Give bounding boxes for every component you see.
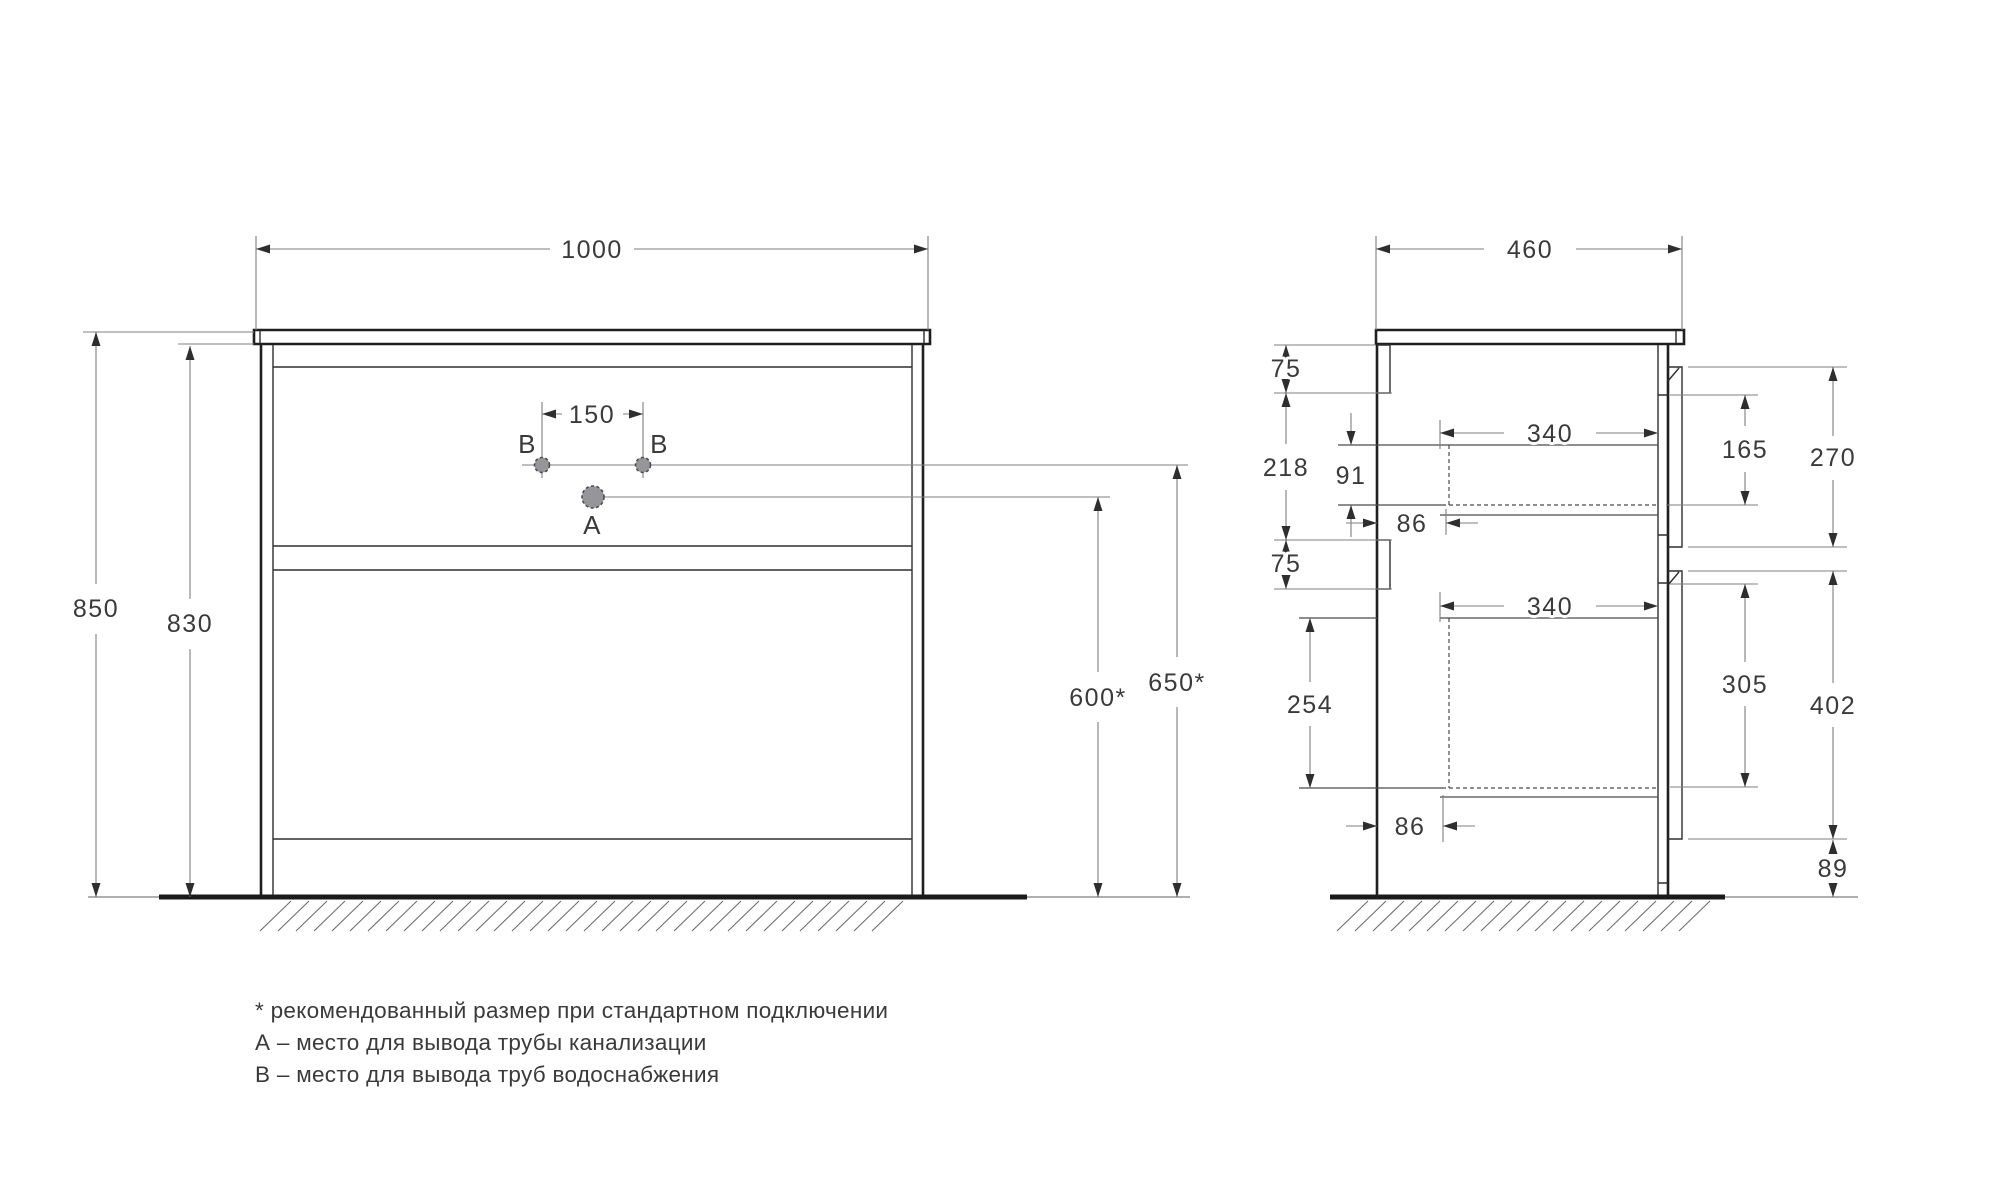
arrowhead-icon <box>186 346 195 360</box>
hatch-line <box>710 901 741 931</box>
hatch-line <box>458 901 489 931</box>
arrowhead-icon <box>92 332 101 346</box>
dim-side-depth: 460 <box>1507 236 1553 264</box>
arrowhead-icon <box>256 245 270 254</box>
hatch-line <box>494 901 525 931</box>
dim-bottom-drawer-inner: 254 <box>1287 691 1333 719</box>
hatch-line <box>1337 901 1368 931</box>
label-point-b-left: B <box>518 429 536 459</box>
arrowhead-icon <box>1094 883 1103 897</box>
hatch-line <box>782 901 813 931</box>
arrowhead-icon <box>1363 519 1377 528</box>
hatch-line <box>1445 901 1476 931</box>
hatch-line <box>1589 901 1620 931</box>
hatch-line <box>1607 901 1638 931</box>
dim-overall-height: 850 <box>73 595 119 623</box>
arrowhead-icon <box>914 245 928 254</box>
hatch-line <box>1409 901 1440 931</box>
arrowhead-icon <box>1829 367 1838 381</box>
arrowhead-icon <box>1829 533 1838 547</box>
hatch-line <box>836 901 867 931</box>
hatch-line <box>1355 901 1386 931</box>
arrowhead-icon <box>1347 431 1356 445</box>
hatch-line <box>1643 901 1674 931</box>
arrowhead-icon <box>629 410 643 419</box>
ground-hatch-side <box>1337 901 1710 931</box>
side-view-drawers <box>1299 445 1658 797</box>
ground <box>88 897 1858 931</box>
hatch-line <box>296 901 327 931</box>
hatch-line <box>602 901 633 931</box>
hatch-line <box>530 901 561 931</box>
dim-bottom-back-offset: 86 <box>1395 813 1426 841</box>
arrowhead-icon <box>1741 773 1750 787</box>
hatch-line <box>368 901 399 931</box>
dim-bottom-front-span: 305 <box>1722 671 1768 699</box>
hatch-line <box>872 901 903 931</box>
dim-bottom-drawer-depth: 340 <box>1527 593 1573 621</box>
hatch-line <box>800 901 831 931</box>
dim-front-width: 1000 <box>561 236 623 264</box>
arrowhead-icon <box>1443 822 1457 831</box>
hatch-line <box>278 901 309 931</box>
drain-point <box>582 486 604 508</box>
arrowhead-icon <box>1376 245 1390 254</box>
hatch-line <box>746 901 777 931</box>
hatch-line <box>1571 901 1602 931</box>
arrowhead-icon <box>1440 429 1454 438</box>
label-point-b-right: B <box>650 429 668 459</box>
hatch-line <box>1499 901 1530 931</box>
dim-upper-span: 218 <box>1263 454 1309 482</box>
hatch-line <box>1481 901 1512 931</box>
arrowhead-icon <box>1446 519 1460 528</box>
arrowhead-icon <box>1363 822 1377 831</box>
hatch-line <box>1463 901 1494 931</box>
hatch-line <box>1553 901 1584 931</box>
legend-point-b: В – место для вывода труб водоснабжения <box>255 1062 719 1087</box>
dim-top-bracket: 75 <box>1271 355 1302 383</box>
hatch-line <box>1391 901 1422 931</box>
hatch-line <box>1373 901 1404 931</box>
hatch-line <box>422 901 453 931</box>
hatch-line <box>1661 901 1692 931</box>
arrowhead-icon <box>1741 584 1750 598</box>
ground-hatch-front <box>260 901 903 931</box>
hatch-line <box>584 901 615 931</box>
hatch-line <box>1535 901 1566 931</box>
hatch-line <box>260 901 291 931</box>
hatch-line <box>548 901 579 931</box>
arrowhead-icon <box>1829 825 1838 839</box>
dim-body-height: 830 <box>167 610 213 638</box>
dim-top-front-height: 270 <box>1810 444 1856 472</box>
arrowhead-icon <box>1741 395 1750 409</box>
hatch-line <box>350 901 381 931</box>
hatch-line <box>566 901 597 931</box>
dim-top-drawer-depth: 340 <box>1527 420 1573 448</box>
arrowhead-icon <box>1173 883 1182 897</box>
dim-top-back-offset: 86 <box>1397 510 1428 538</box>
arrowhead-icon <box>1347 505 1356 519</box>
hatch-line <box>1679 901 1710 931</box>
hatch-line <box>638 901 669 931</box>
hatch-line <box>314 901 345 931</box>
hatch-line <box>512 901 543 931</box>
hatch-line <box>656 901 687 931</box>
arrowhead-icon <box>1440 602 1454 611</box>
dim-mid-bracket: 75 <box>1271 550 1302 578</box>
hatch-line <box>674 901 705 931</box>
hatch-line <box>1625 901 1656 931</box>
arrowhead-icon <box>1306 618 1315 632</box>
dim-bottom-front-height: 402 <box>1810 692 1856 720</box>
technical-drawing: 1000 150 850 830 650* 600* B B A 460 75 … <box>0 0 2000 1200</box>
arrowhead-icon <box>1829 883 1838 897</box>
drawer-box-solid-lines <box>1299 445 1658 797</box>
arrowhead-icon <box>1668 245 1682 254</box>
arrowhead-icon <box>1282 393 1291 407</box>
arrowhead-icon <box>1829 840 1838 854</box>
legend-note: * рекомендованный размер при стандартном… <box>255 998 888 1023</box>
water-supply-point-left <box>535 458 550 473</box>
arrowhead-icon <box>1644 602 1658 611</box>
dim-top-front-span: 165 <box>1722 436 1768 464</box>
dim-outlet-spacing: 150 <box>569 401 615 429</box>
hatch-line <box>764 901 795 931</box>
arrowhead-icon <box>1644 429 1658 438</box>
arrowhead-icon <box>92 883 101 897</box>
label-point-a: A <box>583 510 601 540</box>
legend-point-a: А – место для вывода трубы канализации <box>255 1030 707 1055</box>
dim-drain-height: 600* <box>1069 684 1126 712</box>
hatch-line <box>1427 901 1458 931</box>
hatch-line <box>854 901 885 931</box>
front-view <box>254 330 1684 896</box>
arrowhead-icon <box>1741 491 1750 505</box>
hatch-line <box>692 901 723 931</box>
hatch-line <box>818 901 849 931</box>
hatch-line <box>1517 901 1548 931</box>
arrowhead-icon <box>1829 571 1838 585</box>
front-panel-lines <box>260 331 1682 896</box>
arrowhead-icon <box>1094 497 1103 511</box>
hatch-line <box>728 901 759 931</box>
hatch-line <box>332 901 363 931</box>
front-countertop-and-walls <box>254 330 1684 896</box>
dim-top-drawer-inner: 91 <box>1336 462 1367 490</box>
arrowhead-icon <box>1306 774 1315 788</box>
arrowhead-icon <box>1173 465 1182 479</box>
drawing-page: 1000 150 850 830 650* 600* B B A 460 75 … <box>0 0 2000 1200</box>
water-supply-point-right <box>636 458 651 473</box>
hatch-line <box>404 901 435 931</box>
hatch-line <box>620 901 651 931</box>
arrowhead-icon <box>1282 526 1291 540</box>
dim-plinth-gap: 89 <box>1818 855 1849 883</box>
hatch-line <box>386 901 417 931</box>
hatch-line <box>440 901 471 931</box>
legend: * рекомендованный размер при стандартном… <box>255 998 888 1087</box>
arrowhead-icon <box>542 410 556 419</box>
dim-supply-height: 650* <box>1148 669 1205 697</box>
hatch-line <box>476 901 507 931</box>
